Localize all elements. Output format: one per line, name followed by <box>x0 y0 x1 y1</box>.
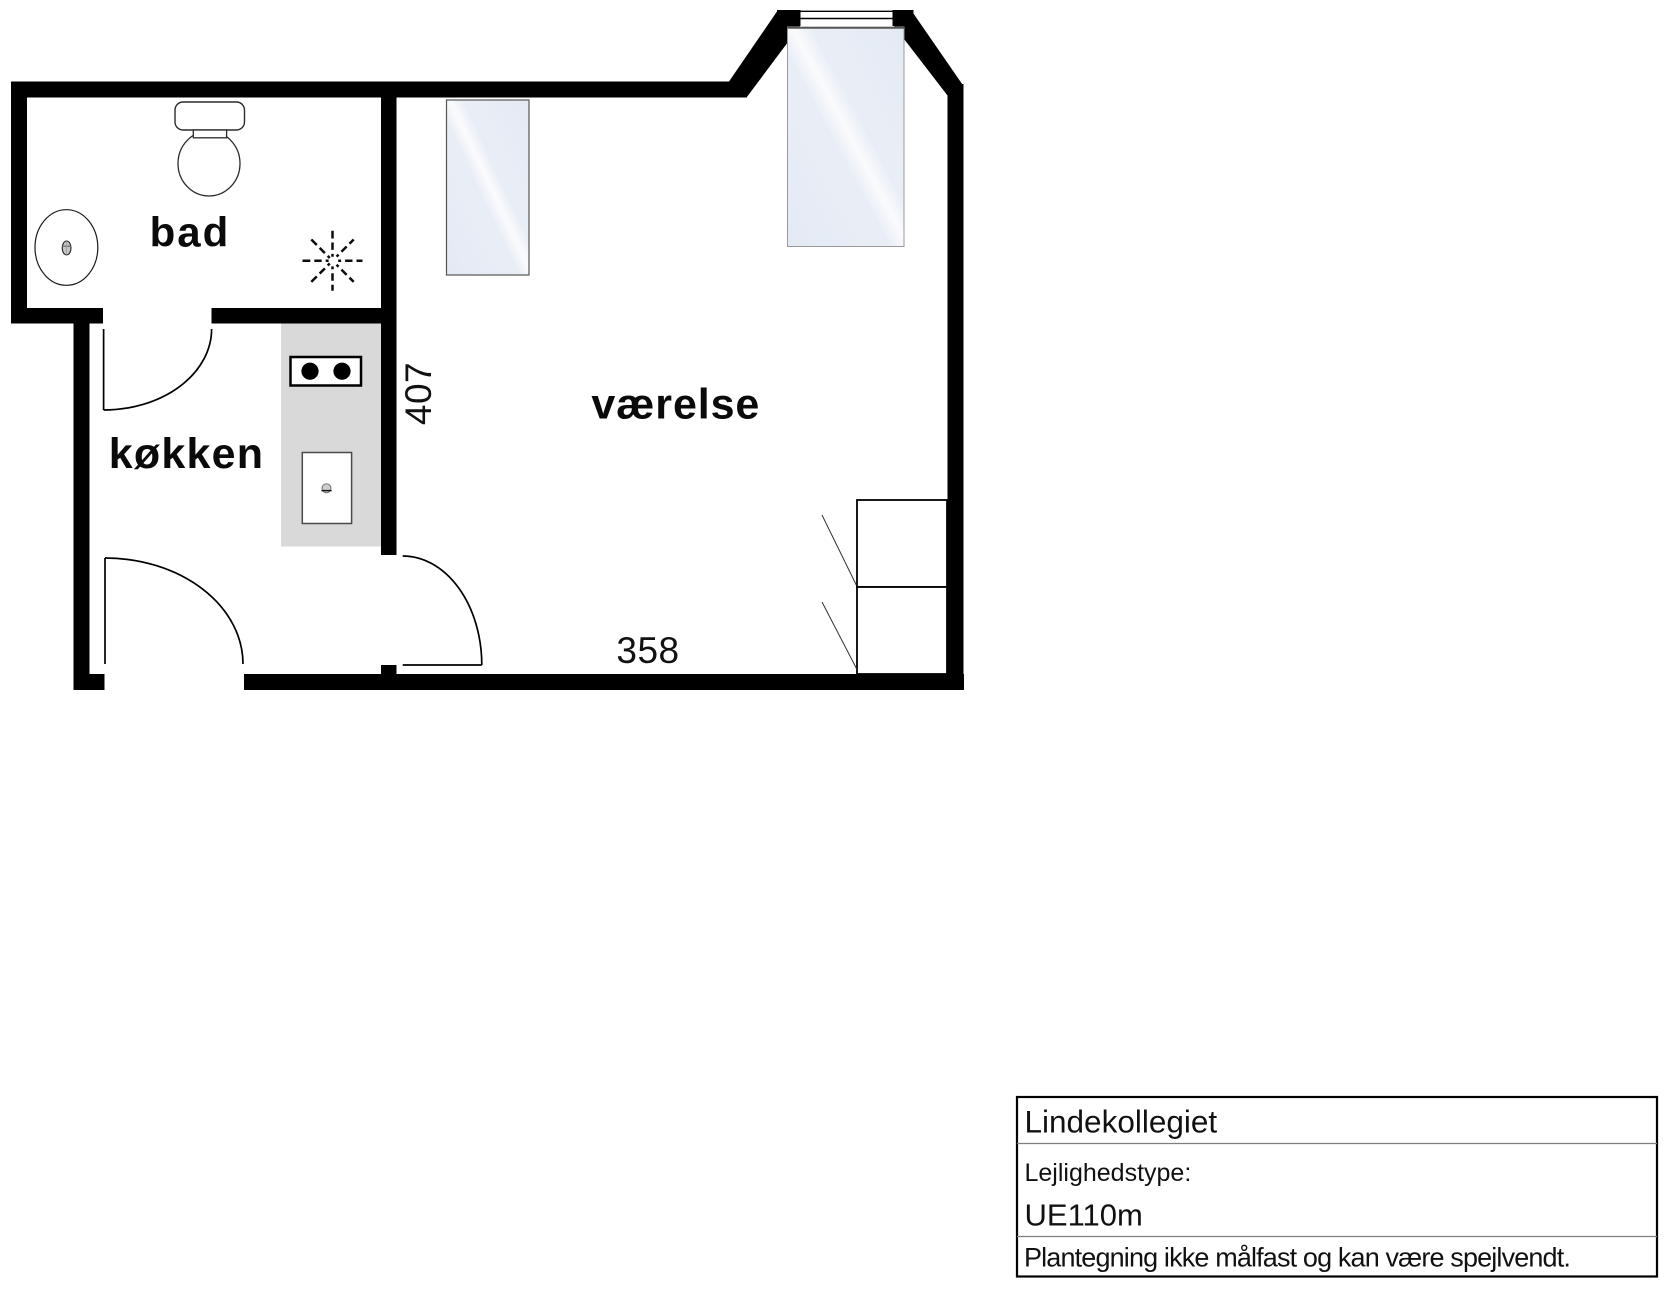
svg-text:358: 358 <box>616 630 679 671</box>
svg-text:Plantegning ikke målfast og ka: Plantegning ikke målfast og kan være spe… <box>1024 1243 1570 1273</box>
svg-text:UE110m: UE110m <box>1025 1198 1143 1233</box>
svg-text:værelse: værelse <box>591 381 760 429</box>
svg-text:bad: bad <box>150 208 231 255</box>
svg-text:407: 407 <box>398 362 439 425</box>
svg-text:køkken: køkken <box>109 430 264 478</box>
svg-text:Lejlighedstype:: Lejlighedstype: <box>1025 1159 1192 1187</box>
svg-text:Lindekollegiet: Lindekollegiet <box>1025 1104 1218 1140</box>
